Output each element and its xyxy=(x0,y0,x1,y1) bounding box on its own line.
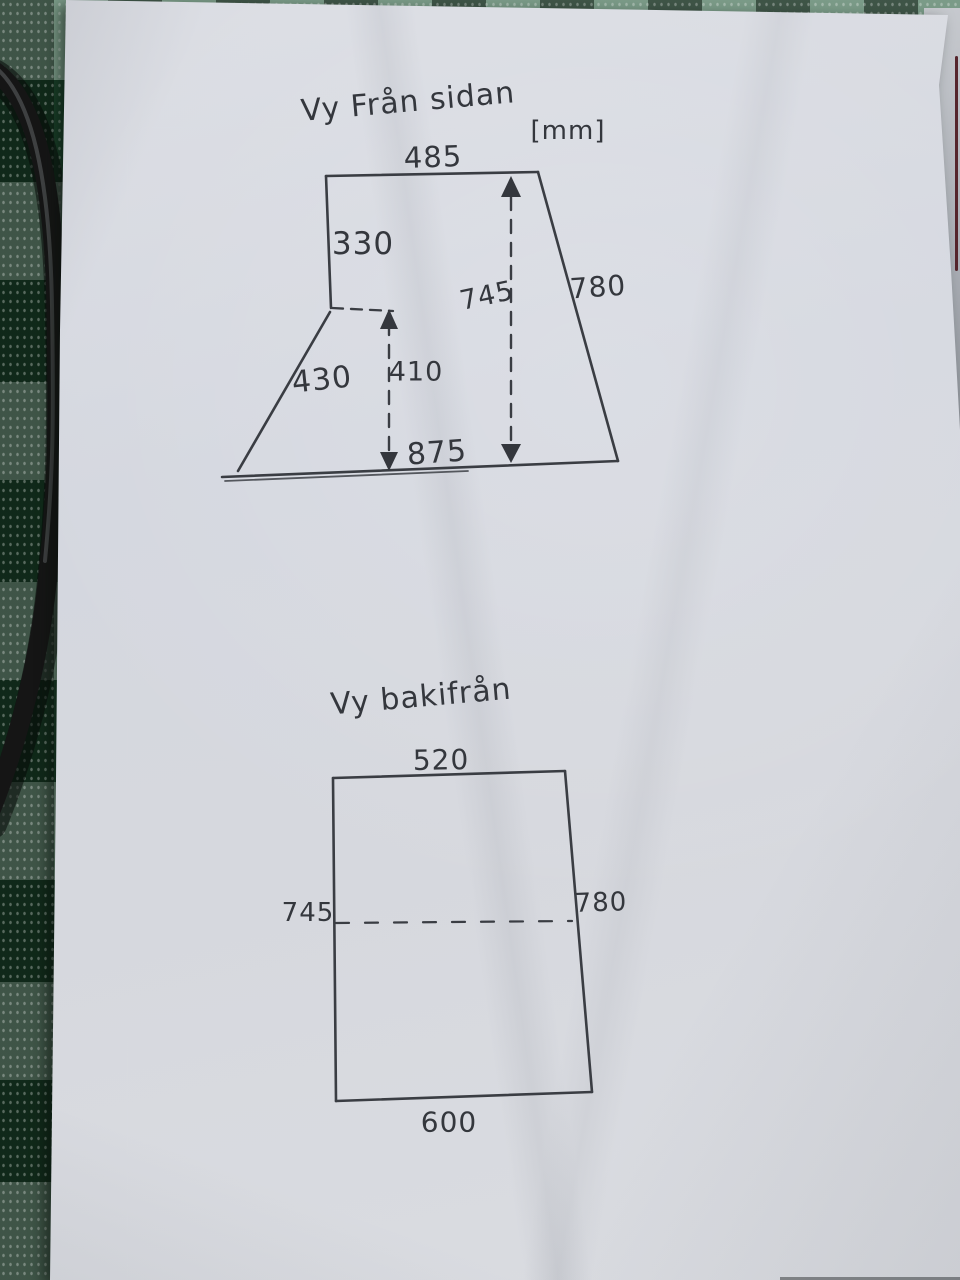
dim-label-top-width-side: 485 xyxy=(403,139,463,175)
back-view-title: Vy bakifrån xyxy=(329,672,513,723)
dim-label-bottom-width-back: 600 xyxy=(421,1106,477,1139)
dim-label-top-width-back: 520 xyxy=(412,743,469,777)
side-view-title: Vy Från sidan xyxy=(300,75,517,129)
photo-of-hand-drawn-sketch: Vy Från sidan [mm] 485 330 745 780 430 4… xyxy=(0,0,960,1280)
dim-label-right-side-back: 780 xyxy=(574,887,628,919)
dim-label-left-lower-slant: 430 xyxy=(290,359,354,400)
dim-label-lower-height: 410 xyxy=(389,357,444,388)
labels-layer: Vy Från sidan [mm] 485 330 745 780 430 4… xyxy=(0,0,960,1280)
unit-label: [mm] xyxy=(531,116,606,146)
dim-label-left-side-back: 745 xyxy=(282,898,335,928)
dim-label-left-upper-side: 330 xyxy=(332,226,394,262)
dim-label-right-side: 780 xyxy=(569,269,628,306)
dim-label-height-overall-side: 745 xyxy=(457,275,517,317)
dim-label-bottom-width-side: 875 xyxy=(406,433,469,472)
